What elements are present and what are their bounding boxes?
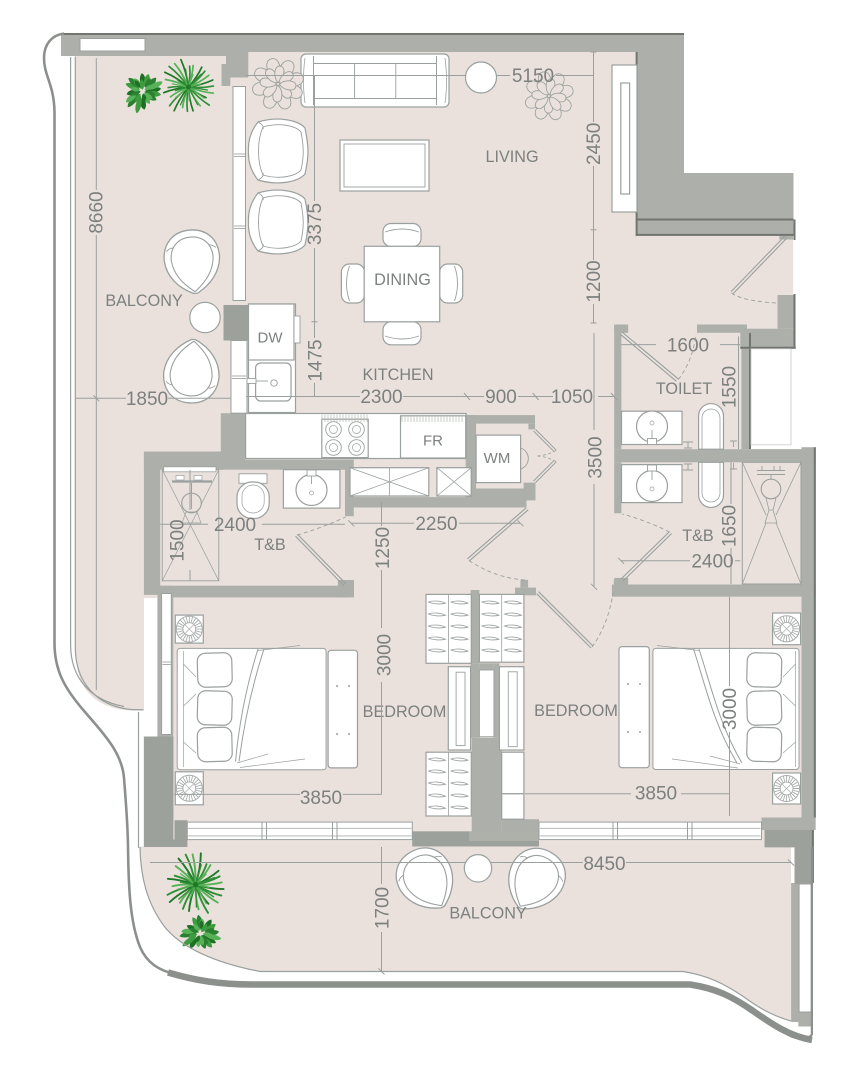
svg-text:1475: 1475	[306, 339, 327, 381]
svg-text:2300: 2300	[360, 387, 402, 408]
svg-text:1850: 1850	[126, 389, 168, 410]
svg-text:1050: 1050	[551, 387, 593, 408]
svg-text:BALCONY: BALCONY	[449, 905, 527, 923]
svg-text:3000: 3000	[720, 688, 741, 730]
svg-text:2400: 2400	[691, 552, 733, 573]
svg-text:DW: DW	[258, 330, 284, 347]
svg-text:DINING: DINING	[374, 271, 431, 289]
svg-text:FR: FR	[423, 432, 443, 449]
svg-text:T&B: T&B	[682, 527, 713, 545]
svg-text:LIVING: LIVING	[485, 148, 538, 166]
svg-text:3850: 3850	[300, 788, 342, 809]
svg-text:1200: 1200	[584, 260, 605, 302]
svg-text:BALCONY: BALCONY	[105, 292, 183, 310]
svg-text:1600: 1600	[667, 335, 709, 356]
svg-text:3375: 3375	[305, 203, 326, 245]
svg-text:2450: 2450	[584, 123, 605, 165]
svg-text:1550: 1550	[720, 366, 741, 408]
svg-text:8660: 8660	[86, 191, 107, 233]
svg-text:TOILET: TOILET	[656, 380, 712, 398]
svg-text:2250: 2250	[415, 514, 457, 535]
svg-text:KITCHEN: KITCHEN	[362, 366, 433, 384]
svg-text:1650: 1650	[720, 505, 741, 547]
svg-text:T&B: T&B	[254, 536, 285, 554]
svg-text:1500: 1500	[168, 519, 189, 561]
svg-text:3500: 3500	[586, 436, 607, 478]
svg-text:1700: 1700	[373, 887, 394, 929]
svg-text:1250: 1250	[373, 527, 394, 569]
svg-text:900: 900	[485, 387, 517, 408]
svg-text:BEDROOM: BEDROOM	[534, 702, 618, 720]
svg-text:BEDROOM: BEDROOM	[363, 703, 447, 721]
svg-text:2400: 2400	[214, 515, 256, 536]
svg-text:3000: 3000	[375, 634, 396, 676]
svg-text:3850: 3850	[635, 784, 677, 805]
svg-text:5150: 5150	[512, 66, 554, 87]
svg-text:WM: WM	[484, 450, 511, 467]
svg-text:8450: 8450	[583, 854, 625, 875]
